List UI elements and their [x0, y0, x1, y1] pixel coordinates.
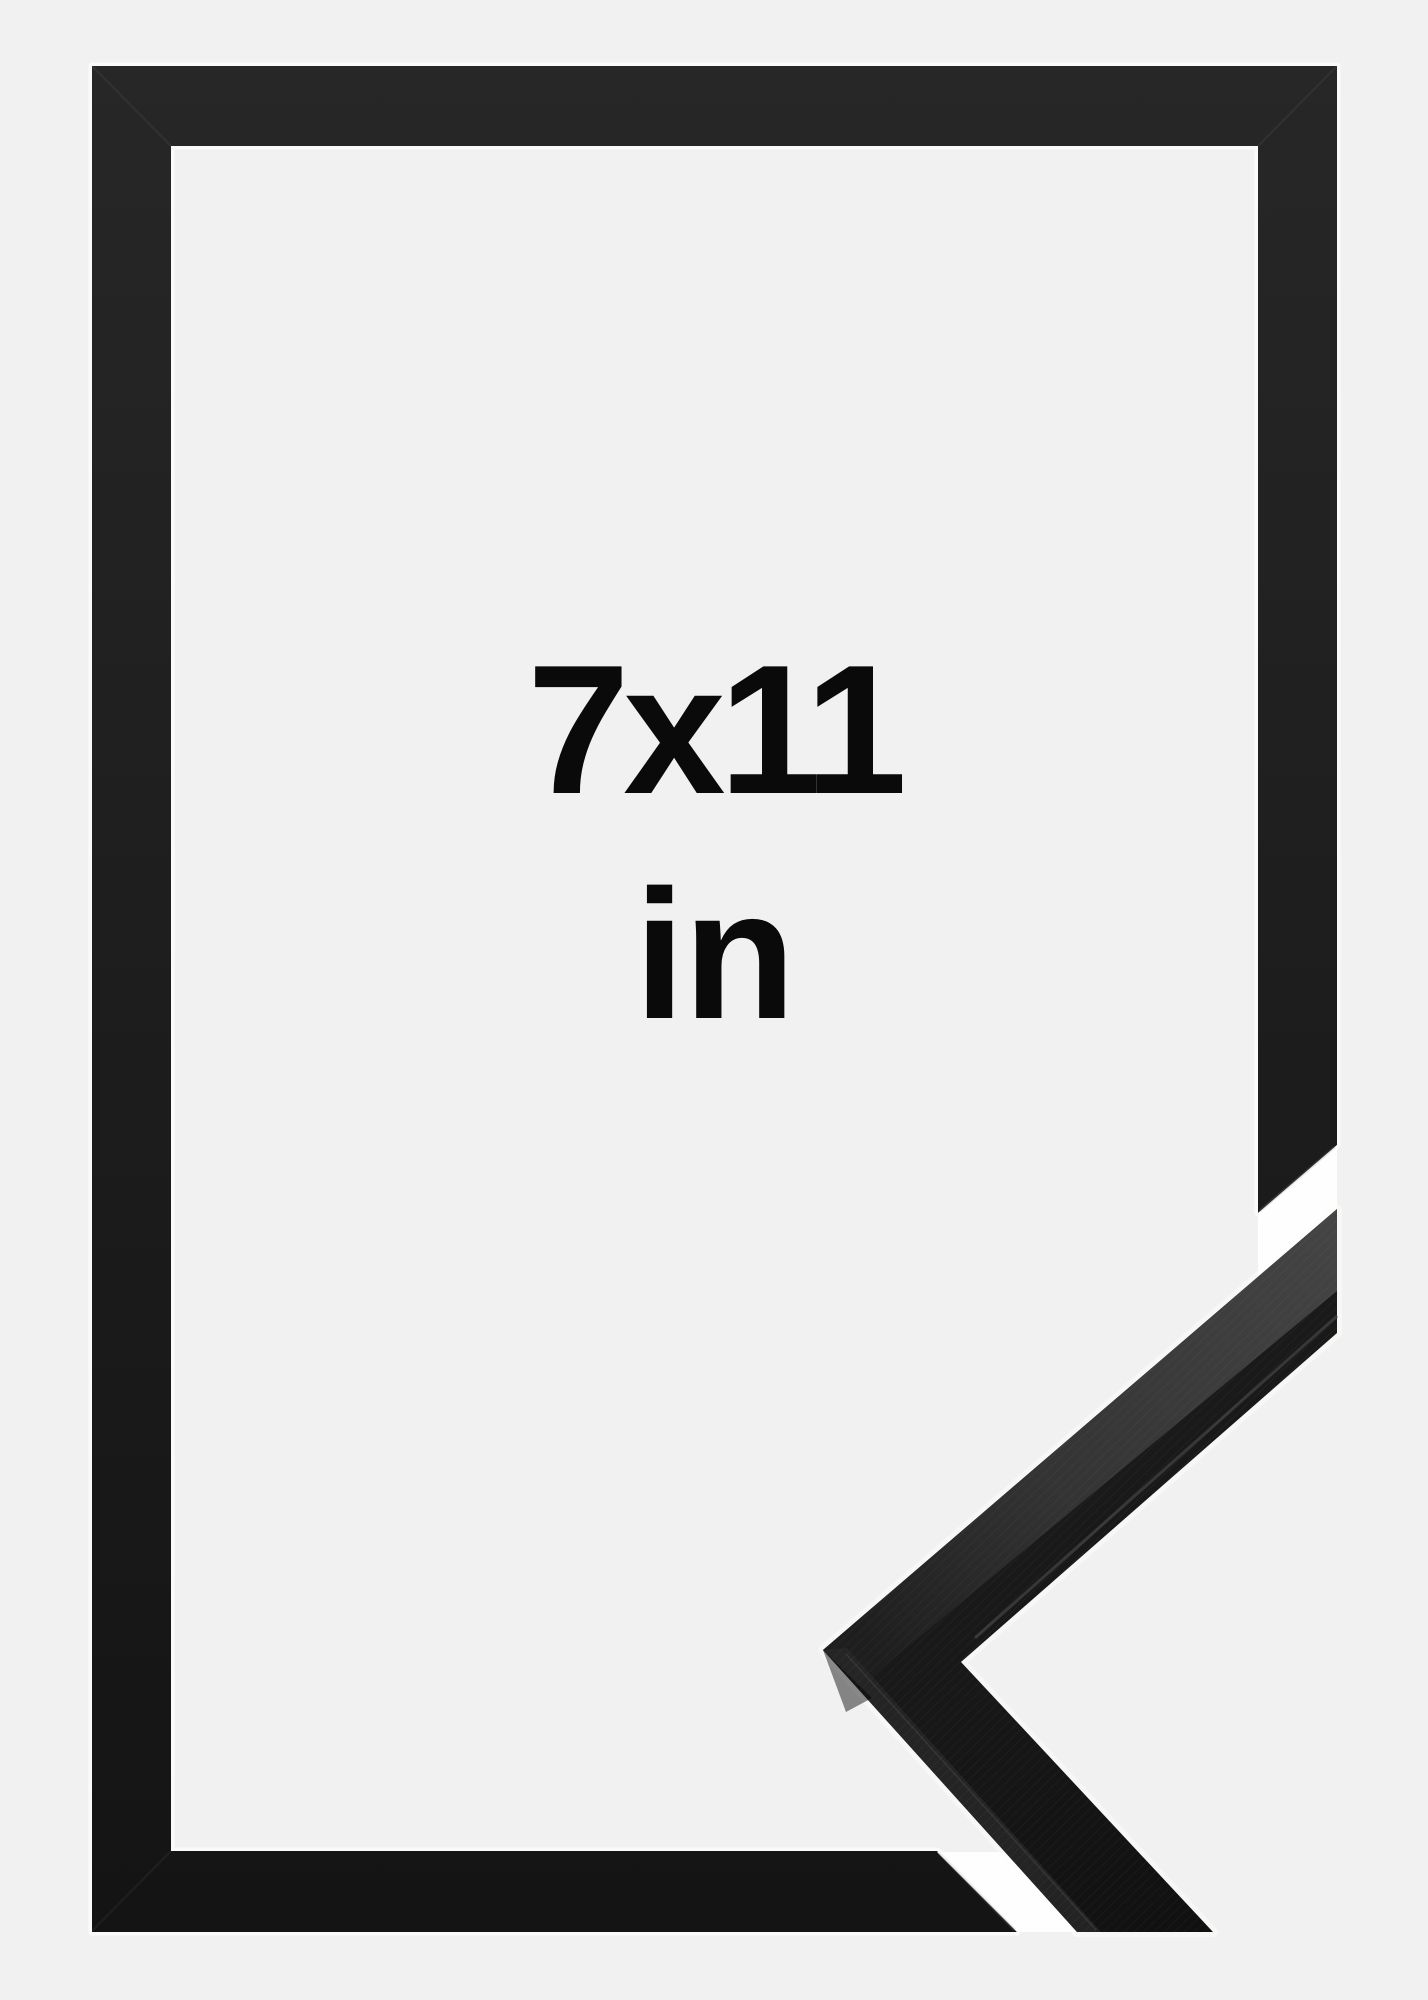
size-label: 7x11	[0, 637, 1428, 821]
product-image-frame-7x11: 7x11 in	[0, 0, 1428, 2000]
corner-sample-texture	[800, 1180, 1360, 1960]
corner-sample-piece	[800, 1180, 1360, 1960]
unit-label: in	[0, 862, 1428, 1046]
